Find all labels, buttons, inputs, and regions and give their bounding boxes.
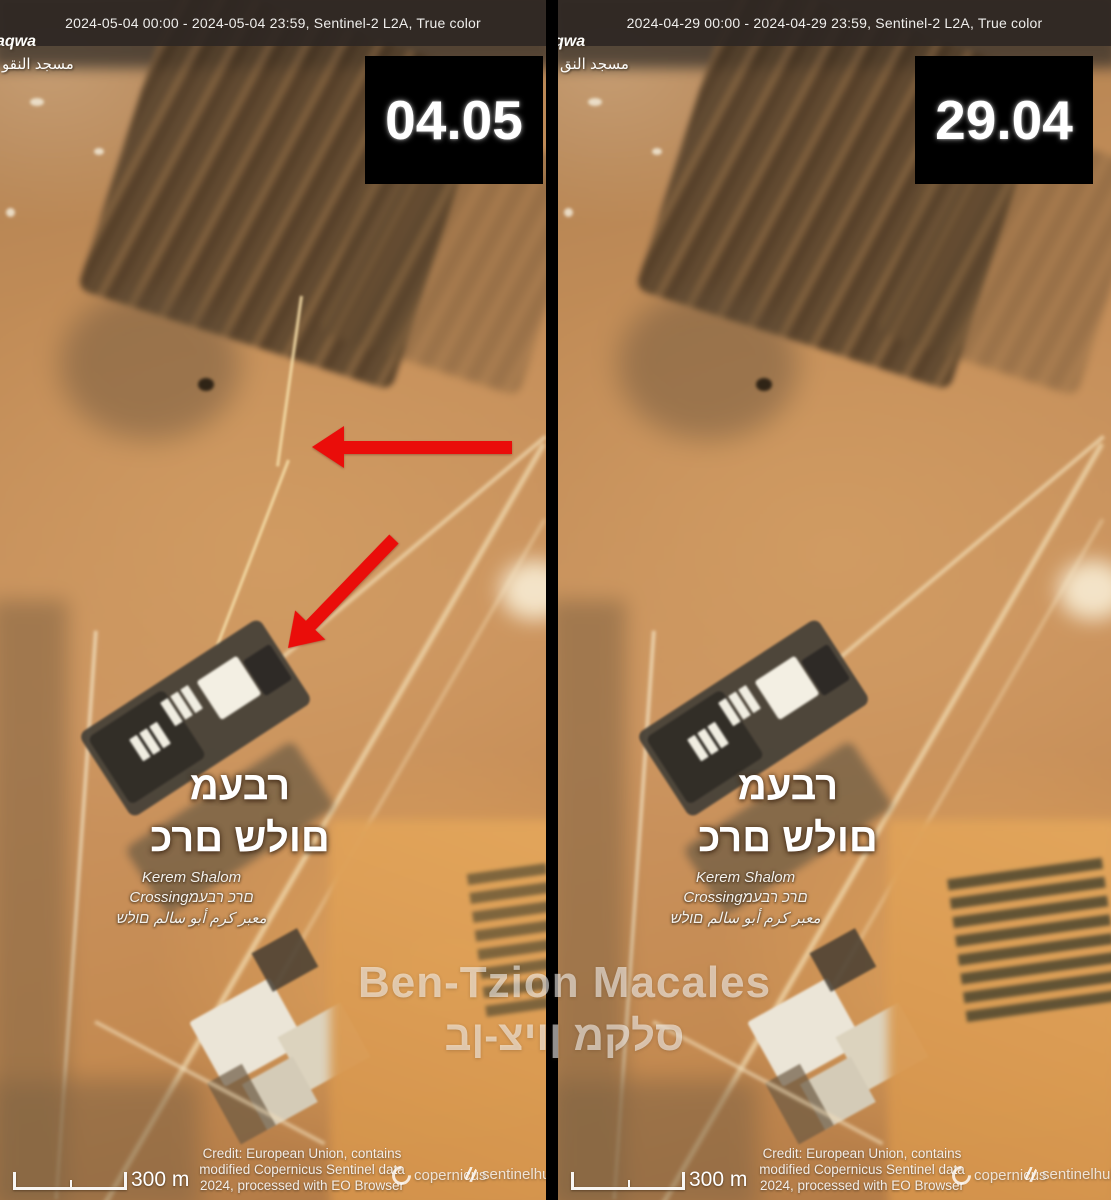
map-texture-shape xyxy=(618,290,798,440)
satellite-comparison-graphic: 2024-05-04 00:00 - 2024-05-04 23:59, Sen… xyxy=(0,0,1111,1200)
timespan-bar: 2024-05-04 00:00 - 2024-05-04 23:59, Sen… xyxy=(0,0,546,46)
watermark-latin: Ben-Tzion Macales xyxy=(9,958,1111,1008)
map-texture-shape xyxy=(652,148,662,155)
crossing-map-label: Kerem Shalom Crossingמעבר כרם שלום معبر … xyxy=(638,868,853,929)
map-scale-bar xyxy=(13,1172,127,1190)
date-badge: 29.04 xyxy=(915,56,1093,184)
map-place-label-latin: aqwa xyxy=(0,33,36,51)
map-texture-shape xyxy=(94,148,104,155)
map-texture-shape xyxy=(564,208,573,217)
date-badge: 04.05 xyxy=(365,56,543,184)
crossing-title: מעבר כרם שלום xyxy=(85,760,395,864)
annotation-arrow-horizontal xyxy=(312,426,512,468)
map-texture-shape xyxy=(198,378,214,391)
map-scale-bar xyxy=(571,1172,685,1190)
map-texture-shape xyxy=(60,290,240,440)
sentinelhub-logo: sentinelhub xyxy=(464,1166,546,1183)
copernicus-icon xyxy=(388,1162,415,1189)
timespan-bar: 2024-04-29 00:00 - 2024-04-29 23:59, Sen… xyxy=(558,0,1111,46)
sentinelhub-icon xyxy=(464,1167,478,1182)
map-texture-shape xyxy=(756,378,772,391)
map-place-label-arabic: مسجد النقو xyxy=(2,55,74,73)
map-texture-shape xyxy=(6,208,15,217)
map-texture-shape xyxy=(588,98,602,106)
map-place-label-latin: qwa xyxy=(558,33,585,51)
timespan-label: 2024-04-29 00:00 - 2024-04-29 23:59, Sen… xyxy=(627,15,1043,31)
watermark-hebrew: בן-ציון מקלס xyxy=(9,1012,1111,1060)
map-texture-shape xyxy=(30,98,44,106)
arrow-head-icon xyxy=(312,426,344,468)
sentinelhub-icon xyxy=(1024,1167,1038,1182)
map-place-label-arabic: مسجد النق xyxy=(560,55,629,73)
sentinelhub-logo: sentinelhub xyxy=(1024,1166,1111,1183)
copernicus-icon xyxy=(948,1162,975,1189)
crossing-title: מעבר כרם שלום xyxy=(633,760,943,864)
crossing-map-label: Kerem Shalom Crossingמעבר כרם שלום معبر … xyxy=(84,868,299,929)
timespan-label: 2024-05-04 00:00 - 2024-05-04 23:59, Sen… xyxy=(65,15,481,31)
